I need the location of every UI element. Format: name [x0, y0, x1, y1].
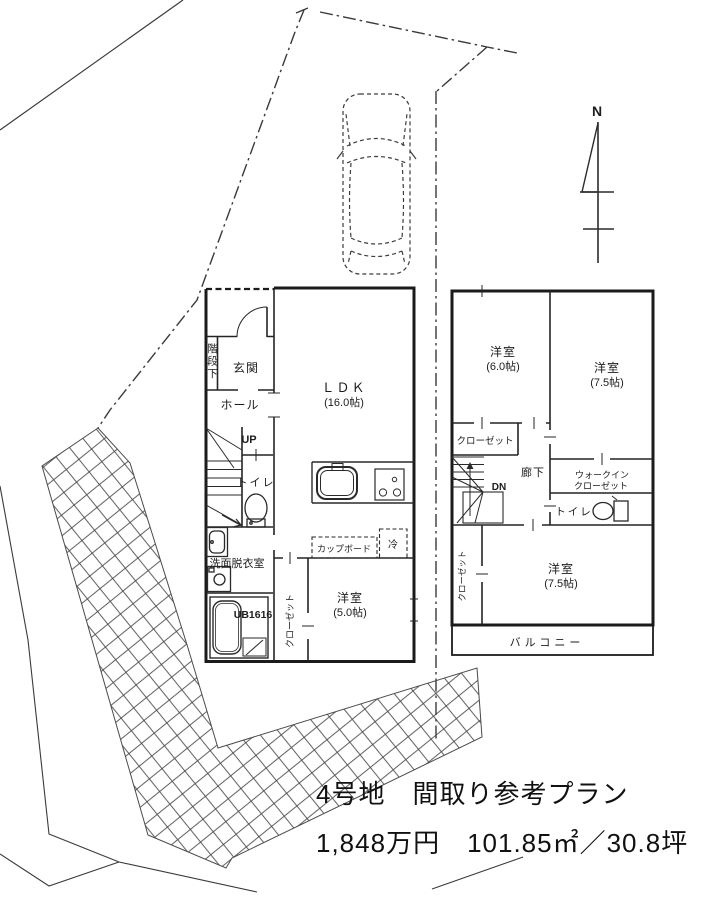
- north-arrow-sail: [582, 123, 598, 192]
- label-closet-side: クローゼット: [457, 550, 467, 601]
- unit-bath: [210, 597, 268, 658]
- car-windshield-top: [347, 139, 406, 147]
- floor1-outer-walls: [206, 288, 414, 662]
- floor2-opening-ticks: [476, 285, 602, 574]
- floor2-plan: 洋室 (6.0帖) 洋室 (7.5帖) クローゼット 廊下 DN ウォークイン …: [452, 285, 653, 655]
- caption-block: 4号地 間取り参考プラン 1,848万円 101.85㎡／30.8坪: [316, 779, 688, 858]
- site-boundary-north: [320, 12, 517, 91]
- label-ldk-size: (16.0帖): [324, 396, 364, 409]
- label-fridge: 冷: [388, 538, 398, 551]
- car-illustration: [337, 94, 416, 274]
- label-hall: ホール: [220, 398, 259, 412]
- floorplan-drawing: N: [0, 0, 708, 903]
- car-trunk-line: [351, 251, 402, 257]
- north-arrow: N: [580, 103, 614, 263]
- label-cupboard: カップボード: [317, 544, 371, 554]
- site-boundary-west: [98, 8, 308, 428]
- north-label: N: [592, 103, 602, 119]
- washbasin-icon: [207, 528, 228, 557]
- label-wic-line1: ウォークイン: [575, 470, 629, 480]
- toilet2-icon: [593, 496, 628, 521]
- label-bedroom-1f-size: (5.0帖): [333, 606, 367, 619]
- washer-icon: [208, 567, 231, 592]
- label-washroom: 洗面脱衣室: [210, 556, 265, 570]
- label-bedroom2: 洋室: [594, 360, 620, 375]
- car-windshield-bottom: [347, 157, 406, 164]
- label-toilet-1f: トイレ: [237, 477, 276, 489]
- car-hood-lines: [346, 114, 407, 146]
- label-balcony: バルコニー: [510, 636, 585, 649]
- car-cabin-left: [350, 163, 352, 238]
- car-rear-lines: [348, 251, 405, 264]
- car-cabin-right: [402, 163, 404, 238]
- road-edge-top-left: [0, 0, 183, 130]
- car-body: [343, 94, 410, 274]
- label-bedroom1: 洋室: [490, 344, 516, 359]
- kitchen-counter: [312, 462, 414, 503]
- label-entrance: 玄関: [233, 360, 259, 375]
- label-bedroom2-size: (7.5帖): [590, 376, 624, 389]
- label-hallway: 廊下: [521, 465, 545, 479]
- caption-price-area: 1,848万円 101.85㎡／30.8坪: [316, 828, 688, 858]
- road-edge-bottom: [432, 857, 523, 889]
- car-mirrors: [337, 151, 416, 159]
- label-toilet-2f: トイレ: [555, 506, 593, 518]
- site-plan: [0, 0, 523, 892]
- label-wic-line2: クローゼット: [574, 480, 628, 491]
- label-bedroom3-size: (7.5帖): [544, 577, 578, 590]
- floorplan-flyer: N: [0, 0, 708, 903]
- label-ldk: ＬＤＫ: [321, 380, 366, 395]
- road-edge-corner: [0, 854, 119, 886]
- label-bath-unit: UB1616: [234, 609, 273, 621]
- toilet1-icon: [245, 494, 267, 527]
- label-bedroom1-size: (6.0帖): [486, 360, 520, 373]
- car-rear-window: [351, 238, 402, 244]
- label-closet-2f: クローゼット: [456, 435, 513, 447]
- caption-plan-title: 4号地 間取り参考プラン: [316, 779, 628, 809]
- label-stairs-down: DN: [492, 482, 506, 493]
- floor1-plan: 階段下 玄関 ホール UP トイレ 洗面脱衣室 UB1616 クローゼット 洋室…: [206, 288, 418, 662]
- label-bedroom-1f: 洋室: [337, 590, 363, 605]
- label-bedroom3: 洋室: [548, 561, 574, 576]
- label-closet-1f: クローゼット: [284, 594, 295, 648]
- floor1-inner-walls: [206, 289, 414, 661]
- label-stairs-up: UP: [241, 434, 256, 446]
- label-understairs: 階段下: [206, 343, 218, 381]
